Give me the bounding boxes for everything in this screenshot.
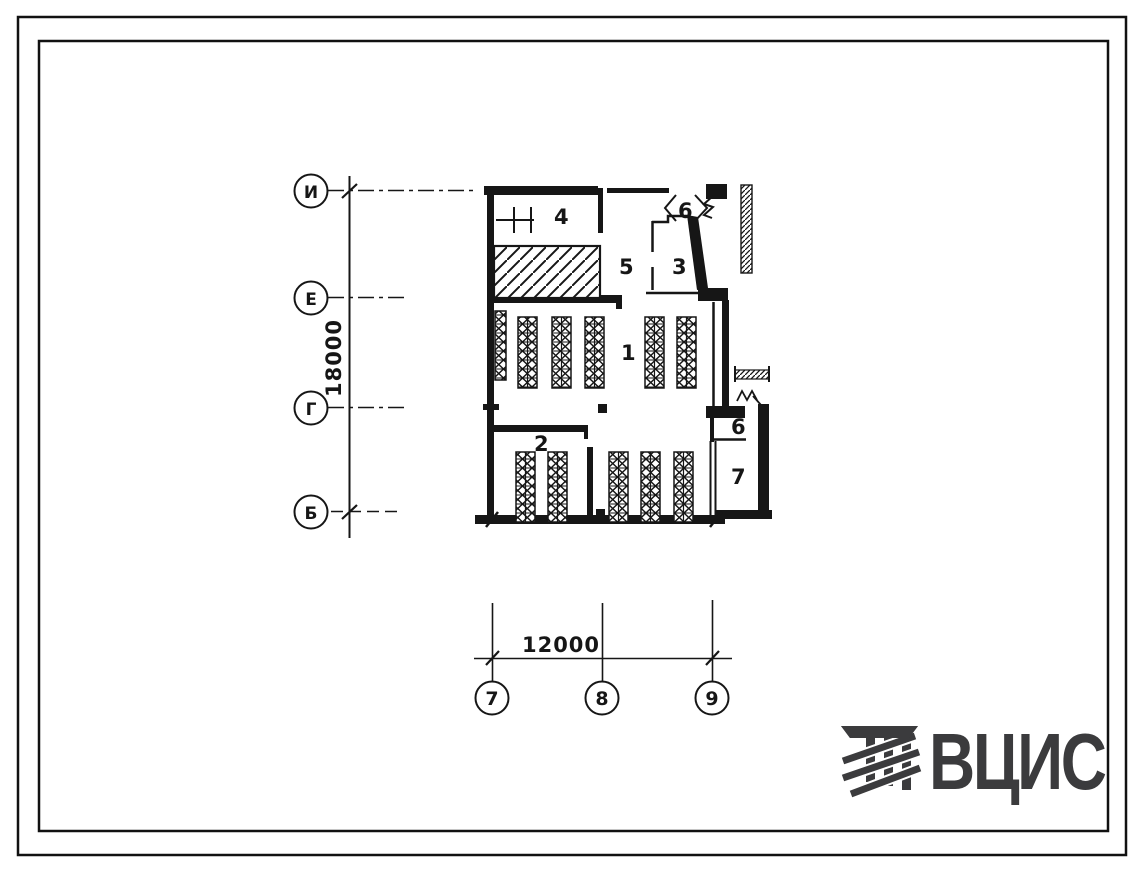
axis-label: 7 xyxy=(485,688,498,710)
wall-room3-slanted xyxy=(687,215,708,290)
wall-left xyxy=(487,186,494,522)
wall-room2-top xyxy=(493,425,588,432)
logo-capital-top xyxy=(841,726,918,738)
axis-marker-E: Е xyxy=(295,282,328,315)
break-zigzag-right xyxy=(737,391,761,405)
wall-room7-right xyxy=(758,404,769,518)
floor-plan: 4 6 5 3 1 2 6 7 xyxy=(475,184,772,527)
room-label: 5 xyxy=(619,255,634,279)
hatched-strip-mid-right xyxy=(735,370,769,379)
axis-marker-I: И xyxy=(295,175,328,208)
axis-label: Е xyxy=(305,290,317,310)
column-marker xyxy=(598,404,607,413)
wall-top-glazed xyxy=(607,188,669,193)
room-label: 7 xyxy=(731,465,746,489)
axis-label: И xyxy=(304,183,318,203)
inner-border xyxy=(39,41,1108,831)
axis-marker-B: Б xyxy=(295,496,328,529)
wall-right-step xyxy=(698,288,728,301)
axis-vertical: И Е Г Б 18000 xyxy=(295,175,476,539)
column-marker xyxy=(596,509,605,517)
axis-marker-7: 7 xyxy=(476,682,509,715)
room-label: 2 xyxy=(534,432,549,456)
room-label: 1 xyxy=(621,341,636,365)
wall-corner-block xyxy=(706,184,727,199)
wall-stub xyxy=(616,295,622,309)
hatched-strip-top-right xyxy=(741,185,752,273)
room-label: 6 xyxy=(678,199,693,223)
publisher-logo: ВЦИС xyxy=(841,722,1139,806)
axis-label: Б xyxy=(305,504,318,524)
axis-horizontal: 12000 7 8 9 xyxy=(474,600,732,715)
wall-room6low-left xyxy=(710,412,714,442)
axis-marker-8: 8 xyxy=(586,682,619,715)
axis-label: 8 xyxy=(595,688,608,710)
logo-mark-icon xyxy=(841,722,923,798)
axis-label: Г xyxy=(306,400,317,420)
hatched-platform xyxy=(494,246,600,298)
room-label: 3 xyxy=(672,255,687,279)
wall-room2-jamb xyxy=(584,425,588,439)
stair-symbol xyxy=(496,207,534,233)
vertical-dimension: 18000 xyxy=(322,319,346,397)
wall-room7-left xyxy=(711,441,716,515)
wall-tick xyxy=(483,404,499,410)
horizontal-dimension: 12000 xyxy=(522,633,600,657)
axis-label: 9 xyxy=(705,688,718,710)
storage-racks xyxy=(495,311,696,522)
scanned-drawing-sheet: 4 6 5 3 1 2 6 7 И Е xyxy=(0,0,1139,869)
wall-top-main xyxy=(484,186,598,195)
room-label: 6 xyxy=(731,415,746,439)
wall-room2-right xyxy=(587,447,593,523)
axis-marker-9: 9 xyxy=(696,682,729,715)
storage-rack xyxy=(495,311,506,380)
room-label: 4 xyxy=(554,205,569,229)
logo-text: ВЦИС xyxy=(929,724,1105,800)
wall-room5-left xyxy=(598,188,603,233)
wall-right-outer xyxy=(722,300,729,408)
